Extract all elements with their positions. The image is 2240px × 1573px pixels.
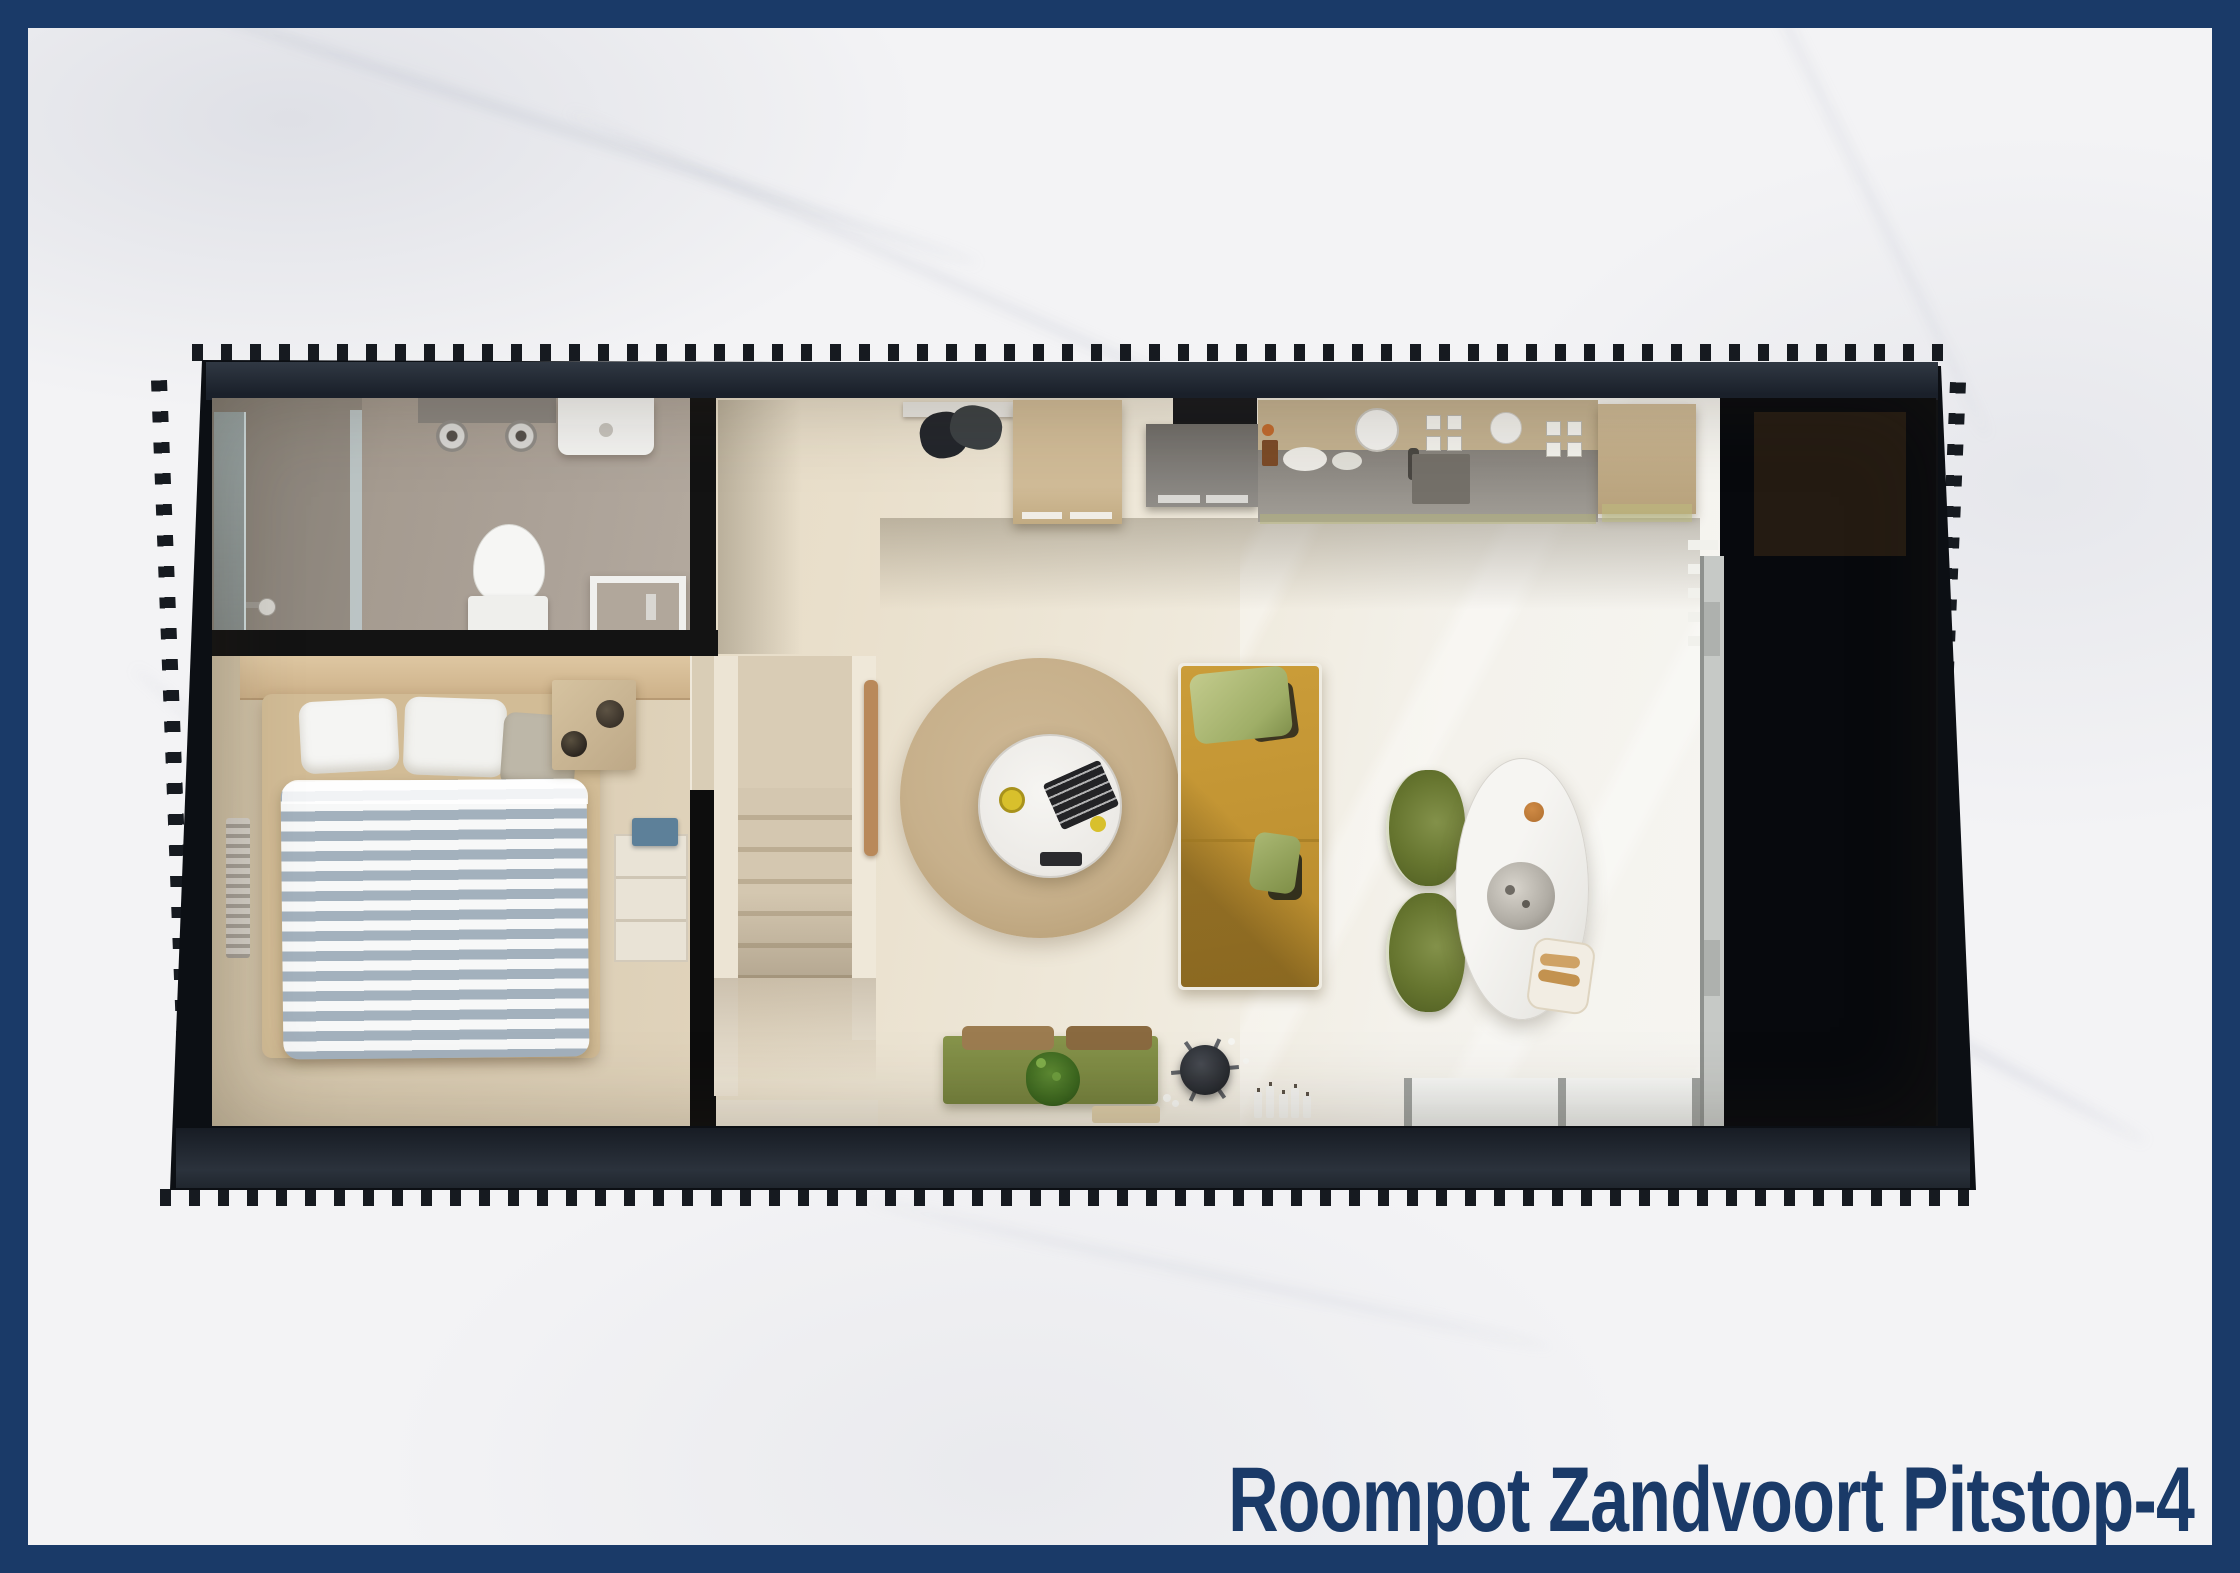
sofa-cushion-green <box>1189 665 1294 745</box>
entry-wall-shadow <box>718 400 802 654</box>
floor-tray <box>1092 1106 1160 1123</box>
serving-bowl <box>1487 862 1555 930</box>
radiator <box>226 818 250 958</box>
bed-pillow <box>298 697 400 774</box>
sofa-cushion-green <box>1248 831 1302 895</box>
duvet-fold <box>282 780 588 804</box>
stove-knob <box>1567 421 1582 436</box>
wall-band-top <box>206 362 1938 400</box>
utensil-jar <box>1262 424 1274 436</box>
shower-head-icon <box>258 598 276 616</box>
bedside-lamp-icon <box>596 700 624 728</box>
cutting-board <box>1262 440 1278 466</box>
kitchen-tall-cabinet <box>1013 400 1122 524</box>
stove-knob <box>1447 415 1462 430</box>
shower-glass-partition <box>350 410 362 654</box>
folded-towel <box>632 818 678 846</box>
patio-window <box>1404 1078 1700 1126</box>
dishwasher-front <box>1412 454 1470 504</box>
shower-glass <box>214 412 246 650</box>
decor-sparkle <box>1228 1038 1235 1045</box>
candle <box>1303 1096 1311 1118</box>
decor-sparkle <box>1243 1058 1249 1064</box>
nightstand <box>552 680 636 770</box>
mug <box>999 787 1025 813</box>
bed-pillow <box>403 696 508 778</box>
counter-edge-glow <box>1260 514 1596 524</box>
decor-flower <box>1172 1100 1179 1107</box>
doorway-opening <box>690 790 716 1126</box>
spotlight-icon <box>436 420 468 452</box>
bowl-fruit <box>1505 885 1515 895</box>
bench-cushion <box>1066 1026 1152 1050</box>
dark-deck-panel <box>1754 412 1906 556</box>
stove-knob <box>1426 436 1441 451</box>
decor-flower <box>1163 1094 1171 1102</box>
stove-knob <box>1426 415 1441 430</box>
orange-fruit <box>1524 802 1544 822</box>
cabinet-handle <box>1070 512 1112 519</box>
stair-handrail <box>864 680 878 856</box>
bench-cushion <box>962 1026 1054 1050</box>
striped-duvet <box>281 778 590 1059</box>
staircase-treads <box>738 788 852 978</box>
wall-band-bottom <box>176 1128 1970 1188</box>
door-handle <box>1704 602 1720 656</box>
kitchen-end-cabinet <box>1598 404 1696 514</box>
door-handle <box>1704 940 1720 996</box>
hall-baseboard <box>716 1100 878 1126</box>
second-basin <box>1490 412 1522 444</box>
plant-leaf <box>1052 1072 1061 1081</box>
remote <box>1040 852 1082 866</box>
lemon <box>1090 816 1106 832</box>
candle <box>1254 1092 1262 1118</box>
candle <box>1266 1086 1274 1118</box>
window-frame <box>1692 1078 1700 1126</box>
candle <box>1291 1088 1299 1118</box>
roof-ticks-top <box>192 344 1950 361</box>
dish <box>1332 452 1362 470</box>
basin-drain <box>599 423 613 437</box>
dining-chair <box>1386 893 1465 1012</box>
side-table-top <box>1180 1045 1230 1095</box>
candle <box>1279 1094 1288 1118</box>
cabinet-underglow <box>1602 504 1692 522</box>
dish <box>1283 447 1327 471</box>
wall-bathroom-right <box>690 398 716 656</box>
stove-knob <box>1567 442 1582 457</box>
wall-bathroom-bottom <box>212 630 718 656</box>
oven-handle <box>1158 495 1200 503</box>
cabinet-handle <box>1022 512 1062 519</box>
shower-tray-handle <box>646 594 656 620</box>
counter-shadow <box>880 518 1700 610</box>
roof-ticks-bottom <box>160 1189 1984 1206</box>
bathroom-mirror <box>418 398 556 423</box>
wardrobe <box>614 834 688 962</box>
oven-handle <box>1206 495 1248 503</box>
kitchen-sink <box>1355 408 1399 452</box>
stove-knob <box>1546 421 1561 436</box>
screenshot-root: Roompot Zandvoort Pitstop-4 <box>0 0 2240 1573</box>
stove-knob <box>1546 442 1561 457</box>
window-frame <box>1404 1078 1412 1126</box>
stove-knob <box>1447 436 1462 451</box>
caption-title: Roompot Zandvoort Pitstop-4 <box>1228 1450 2194 1550</box>
plant-leaf <box>1036 1058 1046 1068</box>
window-frame <box>1558 1078 1566 1126</box>
dining-chair <box>1386 770 1465 886</box>
bowl-fruit <box>1522 900 1530 908</box>
spotlight-icon <box>505 420 537 452</box>
bedside-lamp-icon <box>561 731 587 757</box>
